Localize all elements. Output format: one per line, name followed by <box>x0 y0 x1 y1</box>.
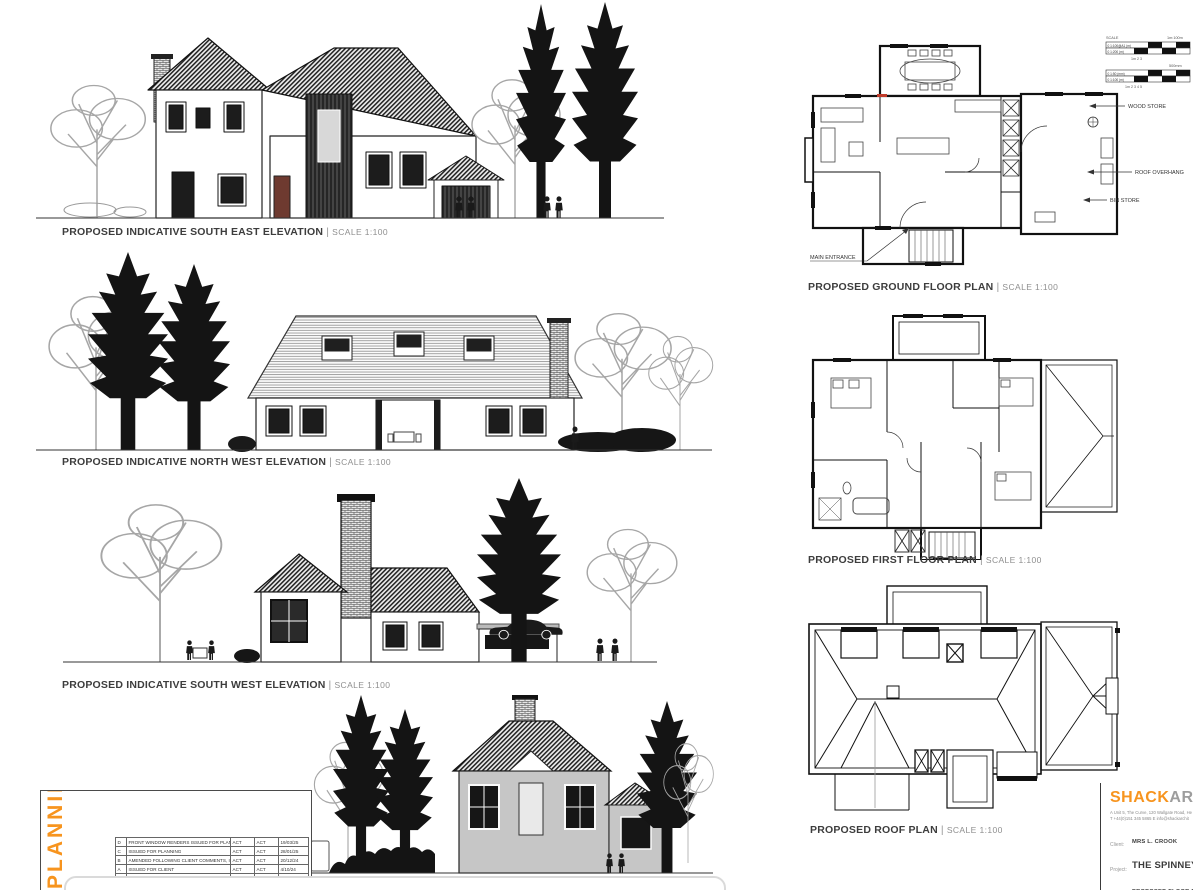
rev-description: ISSUED FOR PLANNING <box>126 846 230 855</box>
b-house <box>453 695 669 873</box>
label-scale: SCALE 1:100 <box>1002 282 1058 292</box>
scale-row-label: 0 1:100@A1 (m) <box>1108 44 1131 48</box>
sw-seated-figures <box>186 640 215 660</box>
label-text: PROPOSED INDICATIVE SOUTH EAST ELEVATION <box>62 226 323 238</box>
main-entrance-label: MAIN ENTRANCE <box>810 255 856 261</box>
ground-floor-plan-label: PROPOSED GROUND FLOOR PLAN|SCALE 1:100 <box>808 281 1058 293</box>
rev-description: ISSUED FOR CLIENT <box>126 864 230 873</box>
revision-row: DFRONT WINDOW RENDERS ISSUED FOR PLANNIN… <box>115 837 309 846</box>
scale-row-label: 0 1:100 (m) <box>1108 78 1124 82</box>
logo-primary: SHACK <box>1110 789 1169 806</box>
rf-dormers <box>841 627 1017 658</box>
rev-date: 28/01/25 <box>278 846 309 855</box>
rev-checked: ACT <box>254 846 278 855</box>
scale-ticks: 1m 2 3 <box>1131 57 1142 61</box>
revision-row: AISSUED FOR CLIENTACTACT4/10/24 <box>115 864 309 873</box>
bottom-toolbar-edge <box>64 876 726 890</box>
se-left-trees <box>51 85 146 218</box>
project-value: THE SPINNEY - <box>1132 860 1193 871</box>
ff-walls <box>813 316 1041 560</box>
rev-letter: C <box>115 846 126 855</box>
sw-left-tree <box>101 505 221 662</box>
label-scale: SCALE 1:100 <box>947 825 1003 835</box>
rev-date: 20/12/24 <box>278 855 309 864</box>
rev-letter: B <box>115 855 126 864</box>
label-text: PROPOSED ROOF PLAN <box>810 824 938 836</box>
rev-checked: ACT <box>254 855 278 864</box>
elevation-se-label: PROPOSED INDICATIVE SOUTH EAST ELEVATION… <box>62 226 388 238</box>
planning-stamp: PLANNING <box>45 793 66 889</box>
scale-ratio-label: 1m:100m <box>1167 36 1183 40</box>
rev-checked: ACT <box>254 864 278 873</box>
rev-description: AMENDED FOLLOWING CLIENT COMMENTS, ISSUE… <box>126 855 230 864</box>
b-planter <box>311 841 329 871</box>
label-scale: SCALE 1:100 <box>332 227 388 237</box>
rev-drawn: ACT <box>230 837 254 846</box>
gf-red-revision-mark <box>877 94 887 97</box>
label-separator: | <box>329 679 332 691</box>
rev-letter: A <box>115 864 126 873</box>
firm-logo: SHACKARC <box>1110 789 1193 807</box>
scale-row-label: 0 1:200 (m) <box>1108 50 1124 54</box>
nw-right-trees <box>558 314 713 452</box>
ff-garage-roof <box>1041 360 1117 512</box>
scale-bar-1: SCALE 1m:100m 0 1:100@A1 (m) 0 1:200 (m)… <box>1106 36 1190 61</box>
label-text: PROPOSED FIRST FLOOR PLAN <box>808 554 977 566</box>
b-hedge <box>329 847 435 873</box>
rev-drawn: ACT <box>230 846 254 855</box>
nw-left-trees <box>49 252 230 450</box>
rev-description: FRONT WINDOW RENDERS ISSUED FOR PLANNING <box>126 837 230 846</box>
scale-label: SCALE <box>1106 36 1119 40</box>
label-separator: | <box>941 824 944 836</box>
fourth-elevation-drawing <box>305 693 717 885</box>
rf-bottom-boxes <box>915 750 1037 808</box>
rev-drawn: ACT <box>230 864 254 873</box>
label-scale: SCALE 1:100 <box>334 680 390 690</box>
scale-ratio-label: 500mm <box>1169 64 1182 68</box>
scale-row-label: 0 1:50 (mm) <box>1108 72 1125 76</box>
south-east-elevation-drawing <box>30 2 675 234</box>
rf-garage-roof <box>1041 622 1118 770</box>
client-value: MRS L. CROOK <box>1132 839 1177 845</box>
rev-letter: D <box>115 837 126 846</box>
elevation-sw-label: PROPOSED INDICATIVE SOUTH WEST ELEVATION… <box>62 679 390 691</box>
revision-row: CISSUED FOR PLANNINGACTACT28/01/25 <box>115 846 309 855</box>
label-separator: | <box>329 456 332 468</box>
rev-date: 19/03/25 <box>278 837 309 846</box>
planning-revision-block: PLANNING DFRONT WINDOW RENDERS ISSUED FO… <box>40 790 312 890</box>
label-text: PROPOSED INDICATIVE NORTH WEST ELEVATION <box>62 456 326 468</box>
label-scale: SCALE 1:100 <box>986 555 1042 565</box>
scale-bars: SCALE 1m:100m 0 1:100@A1 (m) 0 1:200 (m)… <box>1105 34 1193 92</box>
roof-plan-label: PROPOSED ROOF PLAN|SCALE 1:100 <box>810 824 1003 836</box>
first-floor-plan-label: PROPOSED FIRST FLOOR PLAN|SCALE 1:100 <box>808 554 1042 566</box>
rf-corner-tick-bottom <box>1115 762 1120 767</box>
rev-drawn: ACT <box>230 855 254 864</box>
gf-walls <box>805 46 1117 264</box>
title-block: SHACKARC A Unit 5, The Curve, 120 Wallga… <box>1100 783 1193 890</box>
bin-store-label: BIN STORE <box>1110 198 1140 204</box>
project-label: Project: <box>1110 867 1132 873</box>
rf-corner-tick-top <box>1115 628 1120 633</box>
label-separator: | <box>980 554 983 566</box>
south-west-elevation-drawing <box>35 478 695 702</box>
rev-date: 4/10/24 <box>278 864 309 873</box>
wood-store-label: WOOD STORE <box>1128 104 1166 110</box>
contact-line: T +44(0)151 345 5865 E info@shackarchit <box>1110 816 1193 822</box>
scale-ticks: 1m 2 3 4 5 <box>1125 85 1142 89</box>
label-separator: | <box>996 281 999 293</box>
roof-plan-drawing <box>795 580 1125 828</box>
drawing-title-row: Title:PROPOSED FLOOR PLAN <box>1110 880 1193 890</box>
se-house <box>148 38 504 218</box>
label-text: PROPOSED INDICATIVE SOUTH WEST ELEVATION <box>62 679 326 691</box>
elevation-nw-label: PROPOSED INDICATIVE NORTH WEST ELEVATION… <box>62 456 391 468</box>
rev-checked: ACT <box>254 837 278 846</box>
sw-shrub <box>234 649 260 663</box>
b-left-trees <box>314 695 433 873</box>
first-floor-plan-drawing <box>795 308 1125 560</box>
client-row: Client:MRS L. CROOK <box>1110 830 1193 848</box>
logo-secondary: ARC <box>1169 789 1193 806</box>
rf-chimney <box>947 644 963 662</box>
rf-rooflight <box>887 686 899 698</box>
architectural-drawing-sheet: PROPOSED INDICATIVE SOUTH EAST ELEVATION… <box>0 0 1193 890</box>
label-text: PROPOSED GROUND FLOOR PLAN <box>808 281 993 293</box>
label-scale: SCALE 1:100 <box>335 457 391 467</box>
roof-overhang-label: ROOF OVERHANG <box>1135 170 1184 176</box>
scale-bar-2: 500mm 0 1:50 (mm) 0 1:100 (m) 1m 2 3 4 5 <box>1106 64 1190 89</box>
north-west-elevation-drawing <box>30 248 720 470</box>
revision-row: BAMENDED FOLLOWING CLIENT COMMENTS, ISSU… <box>115 855 309 864</box>
firm-address: A Unit 5, The Curve, 120 Wallgate Road, … <box>1110 810 1193 823</box>
project-row: Project:THE SPINNEY - <box>1110 855 1193 873</box>
label-separator: | <box>326 226 329 238</box>
client-label: Client: <box>1110 842 1132 848</box>
nw-house <box>248 316 582 450</box>
sw-figures <box>596 638 619 661</box>
